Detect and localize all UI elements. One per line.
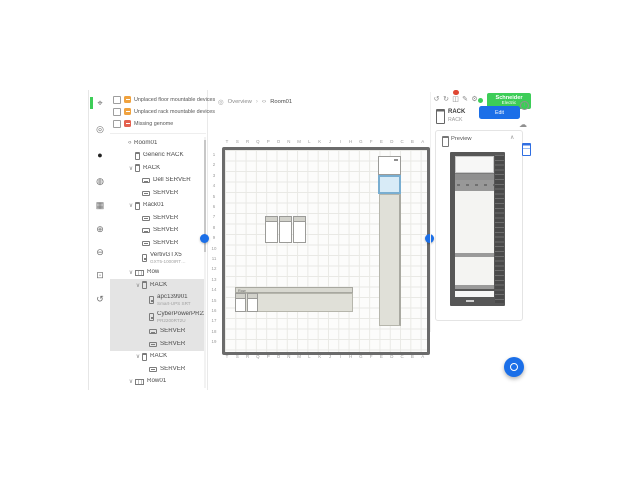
rack-empty-slot [455,291,494,297]
breadcrumb-room[interactable]: Room01 [270,99,292,105]
ruler-left-number: 19 [210,339,218,344]
ups-icon [142,254,147,262]
ruler-left-number: 3 [210,173,218,178]
tree-item-label: RACK [143,165,160,172]
tree-item-label: SERVER [160,366,185,373]
floor-rack-group-1[interactable] [265,216,278,243]
tree-item-label: SERVER [153,190,178,197]
chevron-down-icon[interactable]: ∨ [127,269,135,276]
room-icon: ‹› [128,140,131,146]
ruler-top-letter: F [366,139,376,144]
preview-title: Preview [451,136,472,142]
ruler-left-number: 1 [210,152,218,157]
ruler-top-letter: S [232,139,242,144]
filter-checkbox[interactable] [113,120,121,128]
floor-rack-group-2[interactable] [279,216,292,243]
tree-item-label: SERVER [160,328,185,335]
ruler-top-letter: L [304,139,314,144]
ruler-left-number: 13 [210,277,218,282]
rack-unit-ups-1 [455,173,494,180]
tree-item-label: apc139901 [157,294,191,301]
tree-item-server[interactable]: SERVER [110,187,206,200]
edit-properties-button[interactable]: Edit Properties [479,106,520,119]
tree-item-label: RACK [150,282,167,289]
cloud-icon[interactable]: ☁ [519,120,527,129]
tree-item-label: RACK [150,353,167,360]
ruler-left-number: 7 [210,214,218,219]
overview-icon: ◎ [218,98,224,106]
zoom-in-tool[interactable]: ⊕ [93,222,107,236]
rack-front-preview [450,152,505,306]
rack-header [266,217,277,222]
ruler-top-letter: K [315,139,325,144]
info-icon[interactable]: i [520,101,529,110]
rack-icon [436,109,445,124]
edit-icon[interactable]: ✎ [461,95,470,104]
ruler-top-letter: G [356,139,366,144]
record-tool[interactable]: ● [93,148,107,162]
ruler-top-letter: A [418,139,428,144]
ruler-top-letter: T [222,139,232,144]
tree-item-rack[interactable]: ∨RACK [110,351,206,364]
server-icon [142,178,150,183]
ruler-top-letter: B [407,139,417,144]
ruler-left-number: 11 [210,256,218,261]
tree-item-label: CyberPowerPR2200R… [157,311,206,318]
rack-icon [135,164,140,172]
ruler-left-number: 18 [210,329,218,334]
server-icon [142,241,150,246]
rack-icon [142,353,147,361]
rack-header [280,217,291,222]
filter-label: Unplaced floor mountable devices [134,97,215,103]
room-icon: ‹› [262,98,266,105]
server-icon [142,228,150,233]
tree-item-server[interactable]: SERVER [110,326,206,339]
server-icon [149,329,157,334]
tree-item-label: SERVER [153,240,178,247]
breadcrumb: ◎ Overview › ‹› Room01 [208,94,430,109]
grid-tool[interactable]: ▦ [93,198,107,212]
alerts-icon[interactable]: ◫ [451,95,460,104]
ruler-top-letter: R [243,139,253,144]
ups-icon [149,296,154,304]
breadcrumb-separator: › [256,99,258,105]
ruler-left-number: 2 [210,162,218,167]
tree-item-label: Dell SERVER [153,177,191,184]
divider [110,133,206,134]
tree-item-server[interactable]: SERVER [110,363,206,376]
chevron-down-icon[interactable]: ∨ [127,165,135,172]
ruler-top-letter: C [397,139,407,144]
app-window: ⌖◎●◍▦⊕⊖⊡↺ Unplaced floor mountable devic… [0,0,640,480]
help-chat-fab[interactable] [504,357,524,377]
filter-label: Missing genome [134,121,173,127]
ruler-left-number: 15 [210,298,218,303]
rack-icon [442,136,449,147]
tree-item-cyberpowerpr2200r-[interactable]: CyberPowerPR2200R…PR2200RT2U [110,309,206,326]
ruler-left-number: 14 [210,287,218,292]
server-icon [149,342,157,347]
ruler-left-number: 10 [210,246,218,251]
rack-empty-space [455,191,494,253]
rack-unit-ups-2 [455,180,494,191]
ruler-top-letter: H [346,139,356,144]
floor-rack-unplaced[interactable] [378,156,401,175]
rack-empty-slot [455,156,494,173]
chevron-down-icon[interactable]: ∨ [127,202,135,209]
ruler-top-letter: M [294,139,304,144]
floor-row-rack-2[interactable] [247,293,258,312]
tree-item-apc139901[interactable]: apc139901Smart-UPS SRT [110,292,206,309]
rack-empty-space [455,257,494,285]
chat-icon [510,363,518,371]
chevron-down-icon[interactable]: ∨ [134,353,142,360]
tree-item-vertivgtx5[interactable]: VertivGTX5GXT5-1000IRT… [110,250,206,267]
redo-icon[interactable]: ↻ [442,95,451,104]
status-dot [478,98,483,103]
chevron-down-icon[interactable]: ∨ [134,282,142,289]
ruler-left-number: 6 [210,204,218,209]
rack-header [248,294,257,299]
ups-icon [149,313,154,321]
tree-item-label: Rack01 [143,202,164,209]
alert-badge [453,90,459,95]
rack-view-icon[interactable] [522,143,531,156]
ruler-left-number: 4 [210,183,218,188]
tree-item-label: VertivGTX5 [150,252,186,259]
tree-item-rack[interactable]: ∨RACK [110,162,206,175]
filter-row: Missing genome [113,118,173,129]
breadcrumb-overview[interactable]: Overview [228,99,252,105]
tree-item-room01[interactable]: ‹›Room01 [110,137,206,150]
collapse-preview-icon[interactable]: ∧ [510,134,514,141]
tree-item-row01[interactable]: ∨Row01 [110,376,206,389]
rack-icon [135,152,140,160]
tree-item-sublabel: GXT5-1000IRT… [150,259,186,264]
ruler-top-letter: E [377,139,387,144]
layout-tool[interactable]: ⌖ [93,96,107,110]
rack-u-rail [495,155,504,303]
floor-rack-group-3[interactable] [293,216,306,243]
tree-item-generic-rack[interactable]: Generic RACK [110,150,206,163]
row-label: Row [238,289,246,293]
undo-icon[interactable]: ↺ [432,95,441,104]
ruler-left-number: 5 [210,194,218,199]
floor-row-rack-1[interactable] [235,293,246,312]
tree-item-label: Generic RACK [143,152,184,159]
ruler-top-letter: N [284,139,294,144]
ruler-top-letter: J [325,139,335,144]
tree-item-label: Row [147,269,159,276]
ruler-top-letter: P [263,139,273,144]
ruler-left-number: 9 [210,235,218,240]
tree-item-label: Room01 [134,140,157,147]
pan-tool[interactable]: ◎ [93,122,107,136]
rack-tag [394,159,398,161]
history-tool[interactable]: ↺ [93,292,107,306]
left-tool-rail: ⌖◎●◍▦⊕⊖⊡↺ [88,90,112,390]
ruler-top-letter: Q [253,139,263,144]
filter-checkbox[interactable] [113,108,121,116]
filter-type-icon [124,96,131,103]
tree-item-server[interactable]: SERVER [110,212,206,225]
divider [430,92,431,332]
filter-type-icon [124,120,131,127]
tree-item-rack01[interactable]: ∨Rack01 [110,200,206,213]
ruler-left-number: 12 [210,266,218,271]
tree-item-sublabel: Smart-UPS SRT [157,301,191,306]
tree-item-sublabel: PR2200RT2U [157,318,206,323]
capacity-tool[interactable]: ◍ [93,174,107,188]
floor-rack-selected[interactable] [378,175,401,194]
filter-type-icon [124,108,131,115]
filter-checkbox[interactable] [113,96,121,104]
zoom-fit-tool[interactable]: ⊡ [93,268,107,282]
tree-item-server[interactable]: SERVER [110,237,206,250]
tree-item-label: SERVER [160,341,185,348]
row-icon [135,379,144,385]
ruler-left-number: 8 [210,225,218,230]
tree-item-rack[interactable]: ∨RACK [110,279,206,292]
device-tree: ‹›Room01Generic RACK∨RACKDell SERVERSERV… [110,137,206,388]
ruler-left-number: 17 [210,318,218,323]
rack-icon [142,281,147,289]
server-icon [142,191,150,196]
floor-row-vertical[interactable] [379,194,401,326]
selected-type: RACK [448,109,465,115]
filter-label: Unplaced rack mountable devices [134,109,215,115]
tree-item-server[interactable]: SERVER [110,225,206,238]
ruler-top-letter: O [274,139,284,144]
ruler-left-number: 16 [210,308,218,313]
tree-item-row[interactable]: ∨Row [110,267,206,280]
rack-unit-server-2 [455,285,494,289]
tree-item-label: SERVER [153,215,178,222]
rack-header [236,294,245,299]
collapse-left-panel-handle[interactable] [200,234,209,243]
zoom-out-tool[interactable]: ⊖ [93,245,107,259]
tree-item-label: SERVER [153,227,178,234]
rack-icon [135,202,140,210]
tree-item-label: Row01 [147,378,166,385]
server-icon [142,216,150,221]
chevron-down-icon[interactable]: ∨ [127,378,135,385]
server-icon [149,367,157,372]
tree-item-dell-server[interactable]: Dell SERVER [110,175,206,188]
tree-item-server[interactable]: SERVER [110,338,206,351]
rack-header [294,217,305,222]
filter-row: Unplaced floor mountable devices [113,94,215,105]
rack-bottom-label [466,300,474,302]
selected-name: RACK [448,117,462,123]
row-icon [135,270,144,276]
filter-row: Unplaced rack mountable devices [113,106,215,117]
ruler-top-letter: D [387,139,397,144]
ruler-top-letter: I [335,139,345,144]
